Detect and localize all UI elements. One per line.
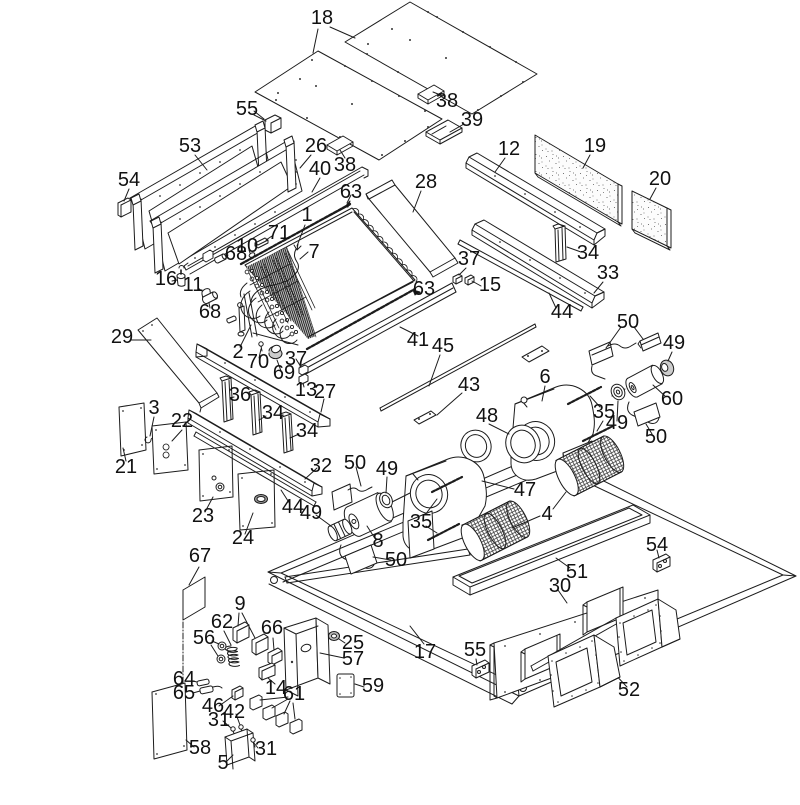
svg-text:15: 15 bbox=[479, 274, 501, 296]
svg-text:54: 54 bbox=[118, 169, 140, 191]
svg-text:52: 52 bbox=[618, 679, 640, 701]
svg-text:35: 35 bbox=[410, 511, 432, 533]
svg-text:38: 38 bbox=[334, 154, 356, 176]
svg-text:26: 26 bbox=[305, 135, 327, 157]
svg-text:50: 50 bbox=[344, 452, 366, 474]
svg-text:23: 23 bbox=[192, 505, 214, 527]
svg-text:20: 20 bbox=[649, 168, 671, 190]
svg-text:28: 28 bbox=[415, 171, 437, 193]
svg-text:40: 40 bbox=[309, 158, 331, 180]
svg-text:48: 48 bbox=[476, 405, 498, 427]
svg-text:1: 1 bbox=[301, 204, 312, 226]
svg-text:59: 59 bbox=[362, 675, 384, 697]
svg-text:22: 22 bbox=[171, 410, 193, 432]
svg-text:56: 56 bbox=[193, 627, 215, 649]
svg-text:67: 67 bbox=[189, 545, 211, 567]
svg-text:3: 3 bbox=[148, 397, 159, 419]
svg-text:43: 43 bbox=[458, 374, 480, 396]
svg-text:29: 29 bbox=[111, 326, 133, 348]
svg-text:53: 53 bbox=[179, 135, 201, 157]
svg-text:70: 70 bbox=[247, 351, 269, 373]
svg-text:37: 37 bbox=[285, 348, 307, 370]
svg-text:58: 58 bbox=[189, 737, 211, 759]
svg-text:37: 37 bbox=[458, 248, 480, 270]
svg-text:45: 45 bbox=[432, 335, 454, 357]
svg-text:42: 42 bbox=[223, 701, 245, 723]
svg-text:16: 16 bbox=[155, 268, 177, 290]
svg-text:71: 71 bbox=[268, 222, 290, 244]
svg-text:65: 65 bbox=[173, 682, 195, 704]
svg-text:66: 66 bbox=[261, 617, 283, 639]
svg-text:57: 57 bbox=[342, 648, 364, 670]
svg-text:27: 27 bbox=[314, 381, 336, 403]
svg-text:5: 5 bbox=[217, 752, 228, 774]
svg-text:6: 6 bbox=[539, 366, 550, 388]
svg-text:55: 55 bbox=[236, 98, 258, 120]
svg-text:19: 19 bbox=[584, 135, 606, 157]
svg-text:12: 12 bbox=[498, 138, 520, 160]
svg-text:14: 14 bbox=[265, 677, 287, 699]
svg-text:60: 60 bbox=[661, 388, 683, 410]
svg-text:49: 49 bbox=[663, 332, 685, 354]
svg-text:9: 9 bbox=[234, 593, 245, 615]
svg-text:63: 63 bbox=[413, 278, 435, 300]
svg-text:41: 41 bbox=[407, 329, 429, 351]
svg-text:38: 38 bbox=[436, 90, 458, 112]
svg-text:47: 47 bbox=[514, 479, 536, 501]
svg-text:17: 17 bbox=[414, 641, 436, 663]
svg-text:34: 34 bbox=[296, 420, 318, 442]
svg-text:44: 44 bbox=[551, 301, 573, 323]
svg-text:30: 30 bbox=[549, 575, 571, 597]
svg-text:54: 54 bbox=[646, 534, 668, 556]
svg-text:36: 36 bbox=[229, 384, 251, 406]
svg-text:21: 21 bbox=[115, 456, 137, 478]
svg-text:39: 39 bbox=[461, 109, 483, 131]
svg-text:8: 8 bbox=[372, 530, 383, 552]
svg-text:33: 33 bbox=[597, 262, 619, 284]
svg-text:50: 50 bbox=[385, 549, 407, 571]
svg-text:34: 34 bbox=[262, 402, 284, 424]
svg-text:31: 31 bbox=[255, 738, 277, 760]
svg-text:49: 49 bbox=[376, 458, 398, 480]
svg-text:18: 18 bbox=[311, 7, 333, 29]
svg-text:2: 2 bbox=[232, 341, 243, 363]
svg-text:4: 4 bbox=[541, 503, 552, 525]
svg-text:24: 24 bbox=[232, 527, 254, 549]
svg-text:11: 11 bbox=[183, 274, 204, 296]
svg-text:7: 7 bbox=[308, 241, 319, 263]
svg-text:68: 68 bbox=[199, 301, 221, 323]
svg-text:50: 50 bbox=[645, 426, 667, 448]
svg-text:55: 55 bbox=[464, 639, 486, 661]
svg-text:49: 49 bbox=[300, 502, 322, 524]
svg-text:35: 35 bbox=[593, 401, 615, 423]
svg-text:50: 50 bbox=[617, 311, 639, 333]
svg-text:63: 63 bbox=[340, 181, 362, 203]
svg-text:32: 32 bbox=[310, 455, 332, 477]
svg-text:68: 68 bbox=[225, 243, 247, 265]
svg-text:34: 34 bbox=[577, 242, 599, 264]
